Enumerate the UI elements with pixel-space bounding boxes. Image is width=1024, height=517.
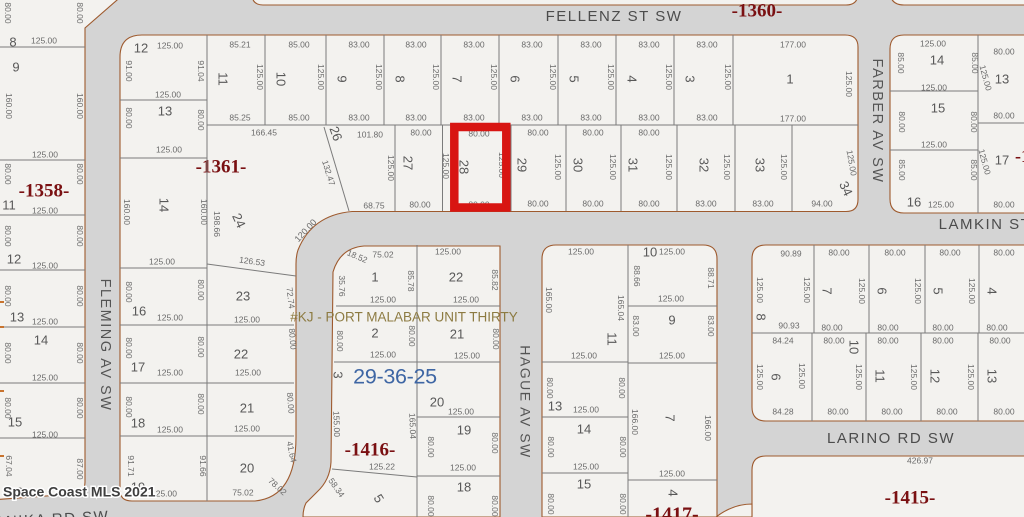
svg-text:80.00: 80.00 [287, 328, 299, 350]
svg-text:94.00: 94.00 [811, 198, 833, 208]
svg-text:HAGUE AV SW: HAGUE AV SW [517, 345, 533, 458]
svg-text:29-36-25: 29-36-25 [353, 365, 437, 389]
svg-text:80.00: 80.00 [75, 225, 85, 247]
svg-text:33: 33 [753, 158, 768, 172]
svg-text:80.00: 80.00 [827, 406, 849, 416]
svg-text:22: 22 [449, 269, 463, 284]
svg-text:125.00: 125.00 [157, 367, 183, 377]
svg-text:80.00: 80.00 [969, 111, 979, 133]
svg-text:80.00: 80.00 [490, 495, 500, 517]
svg-text:166.00: 166.00 [630, 409, 640, 435]
svg-text:17: 17 [995, 152, 1009, 167]
svg-text:80.00: 80.00 [196, 393, 206, 415]
svg-text:80.00: 80.00 [75, 342, 85, 364]
svg-text:125.00: 125.00 [32, 260, 58, 270]
svg-text:80.00: 80.00 [884, 247, 906, 257]
svg-text:4: 4 [625, 75, 640, 82]
svg-text:83.00: 83.00 [521, 112, 543, 122]
svg-text:160.00: 160.00 [4, 93, 14, 119]
svg-text:160.00: 160.00 [75, 93, 85, 119]
svg-text:125.00: 125.00 [723, 64, 733, 90]
svg-text:125.00: 125.00 [454, 350, 480, 360]
svg-text:125.00: 125.00 [157, 40, 183, 50]
svg-text:80.00: 80.00 [407, 325, 417, 347]
svg-text:83.00: 83.00 [348, 39, 370, 49]
svg-text:80.00: 80.00 [196, 336, 206, 358]
svg-text:80.00: 80.00 [75, 397, 85, 419]
svg-text:125.00: 125.00 [374, 64, 384, 90]
svg-text:80.00: 80.00 [932, 335, 954, 345]
svg-text:80.00: 80.00 [196, 279, 206, 301]
svg-text:125.00: 125.00 [157, 312, 183, 322]
svg-text:-1361-: -1361- [196, 156, 247, 177]
svg-text:80.00: 80.00 [993, 46, 1015, 56]
svg-text:85.00: 85.00 [288, 112, 310, 122]
svg-text:15: 15 [931, 100, 945, 115]
svg-text:35.76: 35.76 [337, 275, 347, 297]
svg-text:75.02: 75.02 [232, 487, 254, 497]
svg-text:80.00: 80.00 [932, 322, 954, 332]
svg-text:125.00: 125.00 [155, 89, 181, 99]
svg-text:125.00: 125.00 [441, 153, 451, 179]
svg-text:19: 19 [457, 422, 471, 437]
svg-text:83.00: 83.00 [405, 39, 427, 49]
svg-text:80.00: 80.00 [986, 322, 1008, 332]
svg-text:83.00: 83.00 [463, 112, 485, 122]
svg-text:85.82: 85.82 [490, 269, 500, 291]
svg-text:28: 28 [457, 160, 472, 174]
svg-text:3: 3 [683, 75, 698, 82]
svg-text:125.00: 125.00 [32, 149, 58, 159]
svg-text:8: 8 [9, 34, 16, 49]
svg-text:80.00: 80.00 [527, 127, 549, 137]
svg-text:125.00: 125.00 [431, 64, 441, 90]
svg-text:165.04: 165.04 [616, 295, 626, 321]
svg-text:87.00: 87.00 [75, 458, 85, 480]
svg-text:125.00: 125.00 [453, 294, 479, 304]
svg-text:80.00: 80.00 [993, 406, 1015, 416]
svg-text:125.00: 125.00 [920, 38, 946, 48]
svg-text:125.00: 125.00 [568, 246, 594, 256]
svg-text:125.00: 125.00 [664, 64, 674, 90]
svg-text:20: 20 [240, 460, 254, 475]
svg-text:80.00: 80.00 [877, 335, 899, 345]
svg-text:15: 15 [577, 476, 591, 491]
svg-text:80.00: 80.00 [823, 335, 845, 345]
svg-text:125.00: 125.00 [32, 205, 58, 215]
svg-text:80.00: 80.00 [75, 285, 85, 307]
svg-text:5: 5 [931, 287, 946, 294]
svg-text:125.00: 125.00 [909, 364, 919, 390]
svg-text:80.00: 80.00 [75, 163, 85, 185]
svg-text:80.00: 80.00 [993, 247, 1015, 257]
svg-text:125.00: 125.00 [573, 404, 599, 414]
svg-text:83.00: 83.00 [638, 39, 660, 49]
svg-text:125.00: 125.00 [31, 35, 57, 45]
svg-text:11: 11 [216, 72, 231, 86]
svg-text:125.00: 125.00 [921, 82, 947, 92]
svg-text:80.00: 80.00 [989, 335, 1011, 345]
svg-text:17: 17 [131, 359, 145, 374]
svg-text:68.75: 68.75 [363, 200, 385, 210]
svg-text:75.02: 75.02 [372, 249, 394, 259]
svg-text:32: 32 [697, 158, 712, 172]
svg-text:125.00: 125.00 [802, 277, 812, 303]
svg-text:FELLENZ ST SW: FELLENZ ST SW [546, 8, 683, 25]
svg-text:11: 11 [873, 369, 888, 383]
svg-text:83.00: 83.00 [638, 112, 660, 122]
svg-text:125.00: 125.00 [553, 154, 563, 180]
svg-text:80.00: 80.00 [3, 2, 13, 24]
svg-text:8: 8 [393, 75, 408, 82]
svg-text:13: 13 [995, 71, 1009, 86]
svg-text:83.00: 83.00 [752, 198, 774, 208]
svg-text:29: 29 [515, 158, 530, 172]
svg-text:80.00: 80.00 [936, 406, 958, 416]
svg-text:80.00: 80.00 [897, 111, 907, 133]
svg-text:LARINO RD SW: LARINO RD SW [827, 430, 955, 447]
svg-text:80.00: 80.00 [618, 493, 628, 515]
svg-text:10: 10 [274, 72, 289, 86]
svg-text:125.00: 125.00 [921, 139, 947, 149]
svg-text:12: 12 [7, 251, 21, 266]
svg-text:125.00: 125.00 [659, 468, 685, 478]
svg-text:31: 31 [626, 158, 641, 172]
svg-text:91.00: 91.00 [124, 60, 134, 82]
svg-text:125.00: 125.00 [659, 350, 685, 360]
svg-text:Space Coast MLS 2021: Space Coast MLS 2021 [3, 484, 156, 500]
svg-text:88.66: 88.66 [632, 265, 642, 287]
svg-text:3: 3 [331, 371, 346, 378]
svg-text:10: 10 [847, 340, 862, 354]
svg-text:125.00: 125.00 [797, 363, 807, 389]
svg-text:80.00: 80.00 [285, 392, 297, 414]
svg-text:14: 14 [577, 421, 591, 436]
svg-text:80.00: 80.00 [124, 337, 134, 359]
svg-text:80.00: 80.00 [426, 436, 436, 458]
svg-text:80.00: 80.00 [939, 247, 961, 257]
svg-text:80.00: 80.00 [546, 436, 556, 458]
svg-text:165.04: 165.04 [407, 413, 418, 440]
svg-text:125.00: 125.00 [844, 71, 854, 97]
svg-text:125.00: 125.00 [659, 246, 685, 256]
svg-text:125.00: 125.00 [435, 246, 461, 256]
svg-text:83.00: 83.00 [706, 315, 716, 337]
svg-text:80.00: 80.00 [3, 163, 13, 185]
svg-text:85.78: 85.78 [406, 270, 416, 292]
svg-text:15: 15 [8, 414, 22, 429]
svg-text:125.00: 125.00 [370, 294, 396, 304]
svg-text:125.00: 125.00 [658, 293, 684, 303]
svg-text:91.71: 91.71 [126, 455, 136, 477]
svg-text:91.04: 91.04 [196, 60, 206, 82]
svg-text:-1360-: -1360- [732, 0, 783, 21]
svg-text:80.00: 80.00 [638, 127, 660, 137]
svg-text:8: 8 [754, 313, 769, 320]
svg-text:125.00: 125.00 [548, 64, 558, 90]
svg-text:125.00: 125.00 [722, 154, 732, 180]
svg-text:21: 21 [240, 400, 254, 415]
svg-text:125.00: 125.00 [966, 364, 976, 390]
svg-text:85.25: 85.25 [229, 112, 251, 122]
svg-text:80.00: 80.00 [3, 285, 13, 307]
svg-text:125.00: 125.00 [854, 364, 864, 390]
svg-text:80.00: 80.00 [410, 127, 432, 137]
svg-text:9: 9 [12, 59, 19, 74]
svg-text:-1415-: -1415- [885, 487, 936, 508]
svg-text:80.00: 80.00 [638, 198, 660, 208]
svg-text:166.45: 166.45 [251, 127, 277, 137]
svg-text:125.00: 125.00 [779, 154, 789, 180]
svg-text:80.00: 80.00 [617, 377, 627, 399]
svg-text:83.00: 83.00 [348, 112, 370, 122]
svg-text:1: 1 [371, 269, 378, 284]
svg-text:125.00: 125.00 [857, 278, 867, 304]
svg-text:90.89: 90.89 [780, 248, 802, 258]
svg-text:83.00: 83.00 [405, 112, 427, 122]
svg-text:125.00: 125.00 [157, 424, 183, 434]
svg-text:83.00: 83.00 [580, 112, 602, 122]
svg-text:125.00: 125.00 [928, 199, 954, 209]
svg-text:85.00: 85.00 [896, 52, 906, 74]
svg-text:80.00: 80.00 [491, 328, 501, 350]
svg-text:80.00: 80.00 [124, 281, 134, 303]
svg-text:FLEMING AV SW: FLEMING AV SW [97, 279, 113, 412]
svg-text:13: 13 [158, 103, 172, 118]
svg-text:88.71: 88.71 [706, 267, 716, 289]
svg-text:101.80: 101.80 [357, 129, 383, 139]
svg-text:18: 18 [131, 415, 145, 430]
svg-text:125.00: 125.00 [32, 429, 58, 439]
svg-text:125.00: 125.00 [664, 154, 674, 180]
svg-text:125.00: 125.00 [32, 372, 58, 382]
svg-text:125.00: 125.00 [448, 406, 474, 416]
svg-text:85.00: 85.00 [969, 159, 979, 181]
svg-text:80.00: 80.00 [993, 199, 1015, 209]
svg-text:177.00: 177.00 [780, 39, 806, 49]
svg-text:FARBER AV SW: FARBER AV SW [869, 59, 885, 184]
svg-text:125.00: 125.00 [913, 278, 923, 304]
svg-text:198.66: 198.66 [212, 211, 222, 237]
svg-text:125.00: 125.00 [755, 277, 765, 303]
svg-text:80.00: 80.00 [618, 436, 628, 458]
svg-text:30: 30 [571, 158, 586, 172]
svg-text:125.00: 125.00 [316, 64, 326, 90]
svg-text:125.00: 125.00 [386, 155, 396, 181]
svg-text:125.00: 125.00 [370, 349, 396, 359]
svg-text:80.00: 80.00 [545, 377, 555, 399]
svg-text:1: 1 [786, 71, 793, 86]
svg-text:7: 7 [663, 414, 678, 421]
svg-text:80.00: 80.00 [3, 225, 13, 247]
svg-text:9: 9 [668, 312, 675, 327]
svg-text:80.00: 80.00 [582, 198, 604, 208]
svg-text:85.00: 85.00 [897, 159, 907, 181]
svg-text:80.00: 80.00 [426, 495, 436, 517]
svg-text:80.00: 80.00 [3, 342, 13, 364]
svg-text:9: 9 [335, 75, 350, 82]
svg-text:23: 23 [236, 288, 250, 303]
svg-text:80.00: 80.00 [527, 198, 549, 208]
svg-text:18: 18 [457, 479, 471, 494]
svg-text:6: 6 [769, 373, 784, 380]
svg-text:125.00: 125.00 [255, 64, 265, 90]
svg-text:125.00: 125.00 [489, 64, 499, 90]
svg-text:-1417-: -1417- [645, 504, 698, 517]
svg-text:67.04: 67.04 [4, 455, 14, 477]
svg-text:80.00: 80.00 [821, 322, 843, 332]
svg-text:426.97: 426.97 [907, 455, 933, 465]
svg-text:83.00: 83.00 [696, 39, 718, 49]
svg-text:5: 5 [567, 75, 582, 82]
svg-text:14: 14 [157, 198, 172, 212]
svg-text:165.00: 165.00 [544, 287, 554, 313]
svg-text:21: 21 [450, 326, 464, 341]
svg-text:80.00: 80.00 [490, 432, 500, 454]
svg-text:83.00: 83.00 [696, 112, 718, 122]
svg-text:90.93: 90.93 [778, 320, 800, 330]
svg-text:7: 7 [820, 287, 835, 294]
svg-text:-13: -13 [1015, 146, 1024, 166]
svg-text:12: 12 [928, 369, 943, 383]
svg-text:83.00: 83.00 [463, 39, 485, 49]
svg-text:125.00: 125.00 [235, 367, 261, 377]
svg-text:84.24: 84.24 [772, 335, 794, 345]
svg-text:80.00: 80.00 [881, 406, 903, 416]
svg-text:-1358-: -1358- [19, 180, 70, 201]
svg-text:85.00: 85.00 [970, 52, 980, 74]
svg-text:-1416-: -1416- [345, 439, 396, 460]
svg-text:160.00: 160.00 [122, 199, 132, 225]
svg-text:13: 13 [548, 398, 562, 413]
svg-text:125.00: 125.00 [573, 461, 599, 471]
svg-text:125.00: 125.00 [234, 423, 260, 433]
svg-text:2: 2 [371, 325, 378, 340]
svg-text:155.00: 155.00 [331, 411, 342, 438]
svg-text:16: 16 [907, 194, 921, 209]
svg-text:80.00: 80.00 [993, 110, 1015, 120]
svg-text:14: 14 [34, 332, 48, 347]
svg-text:7: 7 [450, 75, 465, 82]
svg-text:125.00: 125.00 [608, 154, 618, 180]
svg-text:80.00: 80.00 [877, 322, 899, 332]
svg-text:125.00: 125.00 [755, 364, 765, 390]
svg-text:125.00: 125.00 [571, 350, 597, 360]
svg-text:125.00: 125.00 [967, 278, 977, 304]
svg-text:125.00: 125.00 [149, 256, 175, 266]
svg-text:20: 20 [430, 394, 444, 409]
svg-text:#KJ - PORT MALABAR UNIT THIRTY: #KJ - PORT MALABAR UNIT THIRTY [290, 310, 518, 325]
svg-text:80.00: 80.00 [75, 2, 85, 24]
svg-text:10: 10 [643, 244, 657, 259]
svg-text:84.28: 84.28 [772, 406, 794, 416]
svg-text:80.00: 80.00 [582, 127, 604, 137]
svg-text:80.00: 80.00 [335, 330, 345, 352]
svg-text:80.00: 80.00 [828, 247, 850, 257]
svg-text:12: 12 [134, 40, 148, 55]
svg-text:85.00: 85.00 [288, 39, 310, 49]
svg-text:27: 27 [401, 156, 416, 170]
svg-text:91.66: 91.66 [198, 455, 208, 477]
svg-text:125.00: 125.00 [606, 64, 616, 90]
svg-text:6: 6 [508, 75, 523, 82]
svg-text:14: 14 [930, 52, 944, 67]
svg-text:125.00: 125.00 [450, 462, 476, 472]
svg-text:4: 4 [666, 489, 681, 496]
svg-text:83.00: 83.00 [631, 315, 641, 337]
svg-text:16: 16 [132, 303, 146, 318]
svg-text:85.21: 85.21 [229, 39, 251, 49]
svg-text:83.00: 83.00 [580, 39, 602, 49]
svg-text:11: 11 [605, 332, 620, 346]
svg-text:80.00: 80.00 [409, 199, 431, 209]
svg-text:80.00: 80.00 [546, 493, 556, 515]
svg-text:11: 11 [2, 197, 16, 212]
svg-text:13: 13 [985, 369, 1000, 383]
svg-text:6: 6 [875, 287, 890, 294]
svg-text:125.22: 125.22 [369, 461, 395, 471]
svg-text:80.00: 80.00 [124, 107, 134, 129]
svg-text:83.00: 83.00 [695, 198, 717, 208]
svg-text:125.00: 125.00 [234, 314, 260, 324]
svg-text:80.00: 80.00 [196, 109, 206, 131]
svg-text:80.00: 80.00 [124, 396, 134, 418]
svg-text:4: 4 [985, 287, 1000, 294]
svg-text:177.00: 177.00 [780, 113, 806, 123]
svg-text:22: 22 [234, 346, 248, 361]
svg-text:125.00: 125.00 [32, 316, 58, 326]
svg-text:83.00: 83.00 [521, 39, 543, 49]
svg-text:166.00: 166.00 [703, 415, 713, 441]
svg-text:13: 13 [10, 309, 24, 324]
svg-text:125.00: 125.00 [156, 144, 182, 154]
svg-text:LAMKIN ST: LAMKIN ST [939, 216, 1024, 233]
